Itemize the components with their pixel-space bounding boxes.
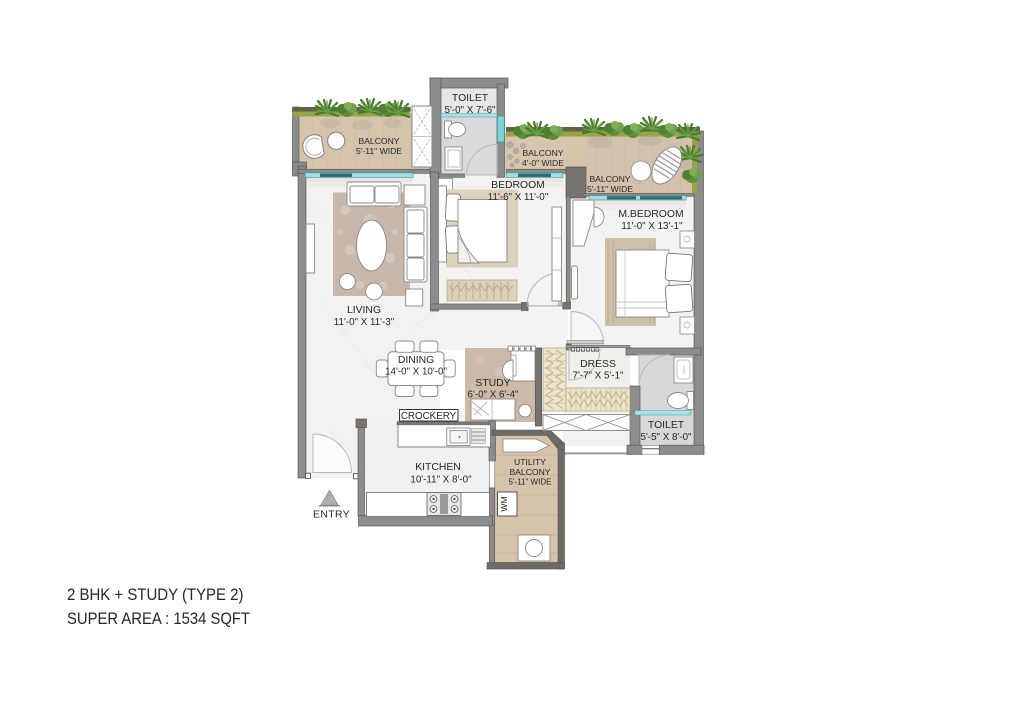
svg-text:KITCHEN: KITCHEN (415, 462, 461, 473)
svg-text:BALCONY: BALCONY (509, 467, 550, 477)
svg-text:11'-0" X 13'-1": 11'-0" X 13'-1" (621, 221, 683, 232)
svg-text:5'-11" WIDE: 5'-11" WIDE (356, 146, 402, 156)
svg-text:ENTRY: ENTRY (313, 510, 350, 521)
svg-text:DRESS: DRESS (580, 359, 616, 370)
svg-text:5'-11" WIDE: 5'-11" WIDE (509, 478, 552, 487)
svg-text:TOILET: TOILET (648, 420, 685, 431)
svg-text:4'-0" WIDE: 4'-0" WIDE (522, 158, 564, 168)
svg-text:5'-0" X 7'-6": 5'-0" X 7'-6" (445, 105, 497, 116)
svg-text:DINING: DINING (398, 355, 434, 366)
svg-text:STUDY: STUDY (475, 378, 510, 389)
svg-text:CROCKERY: CROCKERY (401, 411, 457, 422)
svg-text:UTILITY: UTILITY (514, 457, 546, 467)
svg-text:WM: WM (499, 496, 509, 511)
svg-text:BALCONY: BALCONY (589, 174, 630, 184)
svg-text:BEDROOM: BEDROOM (491, 180, 545, 191)
svg-text:11'-0" X 11'-3": 11'-0" X 11'-3" (334, 317, 395, 328)
svg-text:BALCONY: BALCONY (522, 148, 563, 158)
svg-text:7'-7" X 5'-1": 7'-7" X 5'-1" (573, 371, 625, 382)
svg-text:14'-0" X 10'-0": 14'-0" X 10'-0" (385, 367, 447, 378)
svg-text:6'-0" X 6'-4": 6'-0" X 6'-4" (468, 390, 520, 401)
svg-text:M.BEDROOM: M.BEDROOM (618, 209, 683, 220)
svg-text:11'-6" X 11'-0": 11'-6" X 11'-0" (488, 192, 549, 203)
svg-text:10'-11" X 8'-0": 10'-11" X 8'-0" (410, 475, 472, 486)
svg-text:SUPER AREA : 1534 SQFT: SUPER AREA : 1534 SQFT (67, 609, 250, 628)
svg-text:BALCONY: BALCONY (358, 136, 399, 146)
svg-text:TOILET: TOILET (452, 93, 489, 104)
svg-text:LIVING: LIVING (347, 305, 381, 316)
svg-text:5'-11" WIDE: 5'-11" WIDE (587, 184, 633, 194)
svg-text:5'-5" X 8'-0": 5'-5" X 8'-0" (641, 432, 693, 443)
svg-text:2 BHK + STUDY (TYPE 2): 2 BHK + STUDY (TYPE 2) (67, 585, 244, 604)
